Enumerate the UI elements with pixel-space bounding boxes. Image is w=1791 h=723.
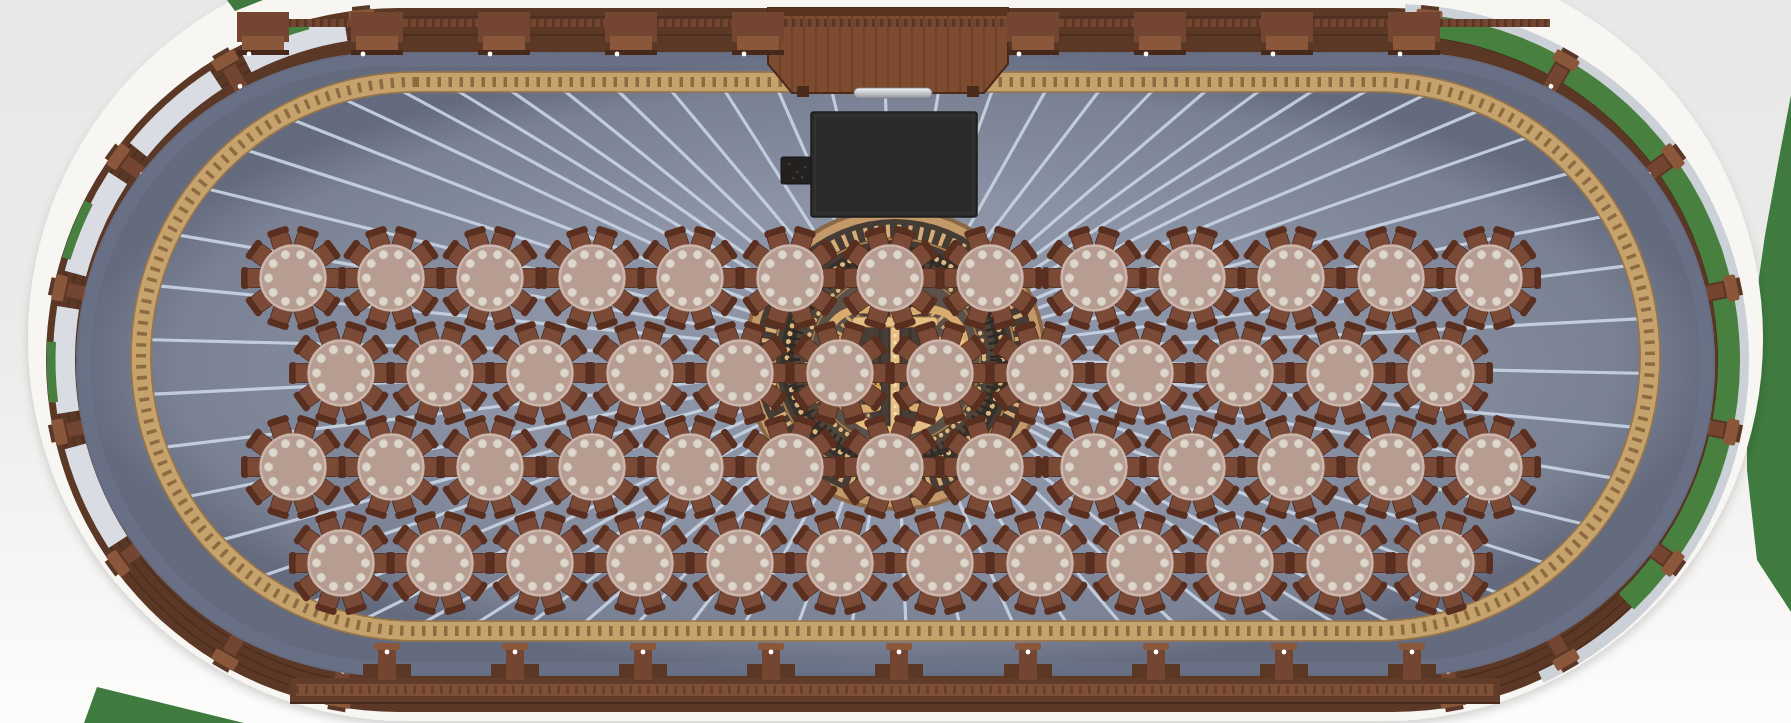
stage-foot <box>797 86 809 97</box>
floorplan-svg <box>0 0 1791 723</box>
green-wedge-bottom-left <box>84 687 244 723</box>
lamp-dot <box>1144 52 1149 57</box>
footlight-bar <box>854 88 932 98</box>
window-glass-sliver <box>51 342 54 402</box>
lamp-dot <box>385 650 390 655</box>
wall-bracket-top <box>237 12 289 56</box>
stage-foot <box>967 86 979 97</box>
lamp-dot <box>488 52 493 57</box>
wall-bracket-top <box>1261 12 1313 56</box>
lamp-dot <box>897 650 902 655</box>
wall-bracket-top <box>605 12 657 56</box>
lamp-dot <box>1410 650 1415 655</box>
lamp-dot <box>615 52 620 57</box>
wall-bracket-top <box>478 12 530 56</box>
lamp-dot <box>513 650 518 655</box>
lamp-dot <box>361 52 366 57</box>
lamp-dot <box>742 52 747 57</box>
lamp-dot <box>1271 52 1276 57</box>
lamp-dot <box>1017 52 1022 57</box>
lamp-dot <box>769 650 774 655</box>
lamp-dot <box>247 52 252 57</box>
lamp-dot <box>1398 52 1403 57</box>
grand-piano[interactable] <box>781 112 977 217</box>
wall-bracket-top <box>732 12 784 56</box>
lamp-dot <box>1026 650 1031 655</box>
piano-bench[interactable] <box>781 157 815 184</box>
wall-bracket-top <box>1388 12 1440 56</box>
lamp-dot <box>1282 650 1287 655</box>
wall-bracket-top <box>351 12 403 56</box>
window-curtain <box>64 308 68 412</box>
banquet-hall-floorplan <box>0 0 1791 723</box>
lamp-dot <box>1154 650 1159 655</box>
lamp-dot <box>641 650 646 655</box>
wall-bracket-top <box>1134 12 1186 56</box>
wall-bracket-top <box>1007 12 1059 56</box>
